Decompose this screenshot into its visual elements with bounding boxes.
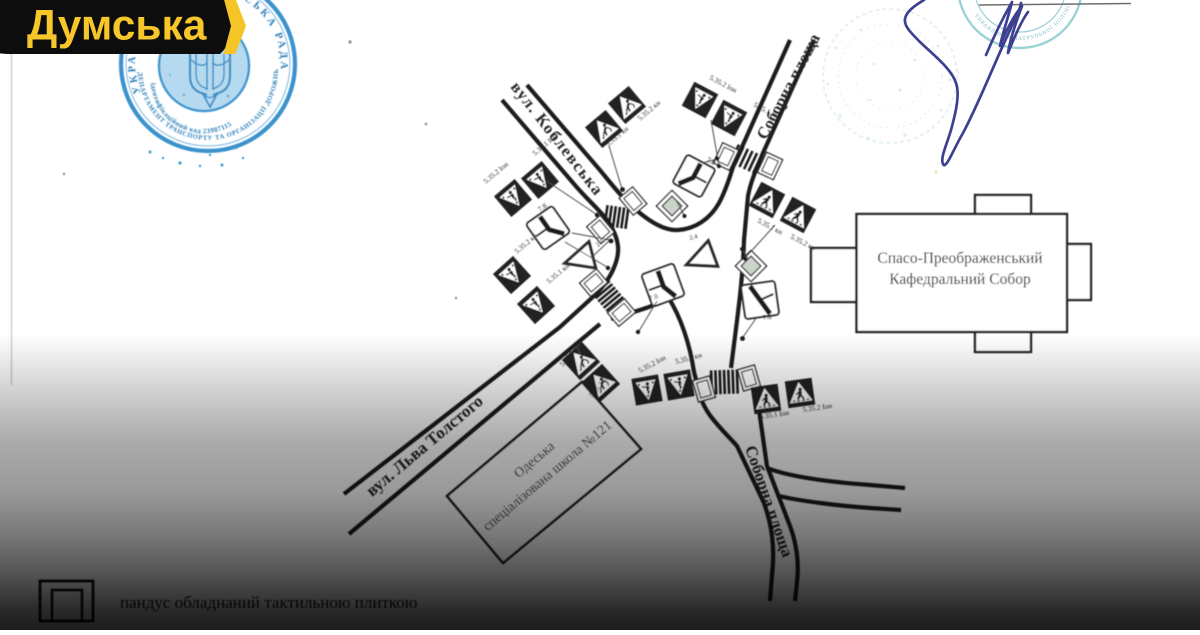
svg-text:Думська: Думська bbox=[27, 3, 207, 50]
